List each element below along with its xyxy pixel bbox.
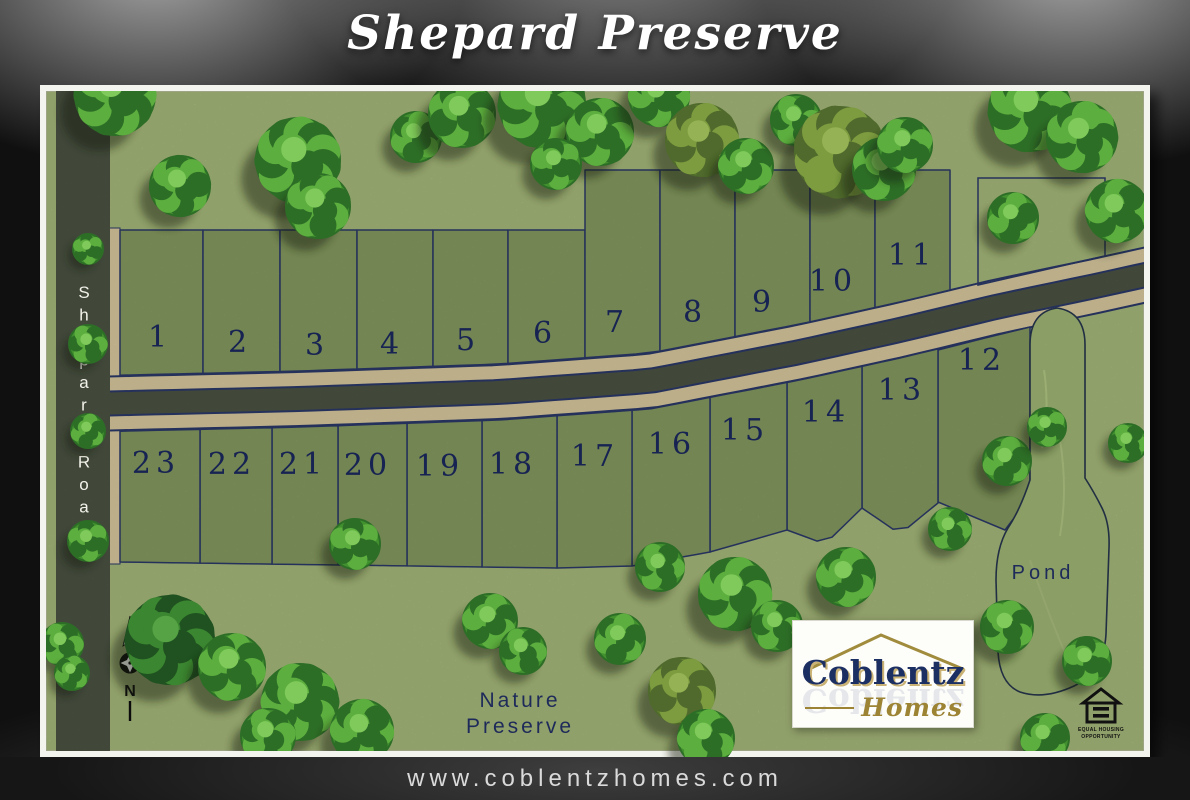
nature-preserve-label-line2: Preserve	[466, 715, 574, 738]
equal-housing-label-line2: OPPORTUNITY	[1081, 734, 1121, 740]
logo-homes-label: Homes	[861, 693, 963, 722]
logo-rule	[805, 707, 854, 709]
builder-logo: Coblentz Coblentz Homes	[792, 620, 974, 728]
equal-housing-label-line1: EQUAL HOUSING	[1078, 727, 1124, 733]
flyer-stage: Shepard Preserve	[0, 0, 1190, 800]
pond-label: Pond	[1012, 562, 1075, 584]
map-content: 1234567891011121314151617181920212223 Sh…	[34, 55, 1154, 775]
nature-preserve-label-line1: Nature	[479, 689, 560, 712]
footer-bar: www.coblentzhomes.com	[0, 757, 1190, 800]
site-plan-map: 1234567891011121314151617181920212223 Sh…	[0, 0, 1190, 800]
website-url: www.coblentzhomes.com	[407, 765, 783, 793]
logo-subtitle: Homes	[805, 693, 963, 722]
logo-name: Coblentz	[793, 653, 973, 692]
